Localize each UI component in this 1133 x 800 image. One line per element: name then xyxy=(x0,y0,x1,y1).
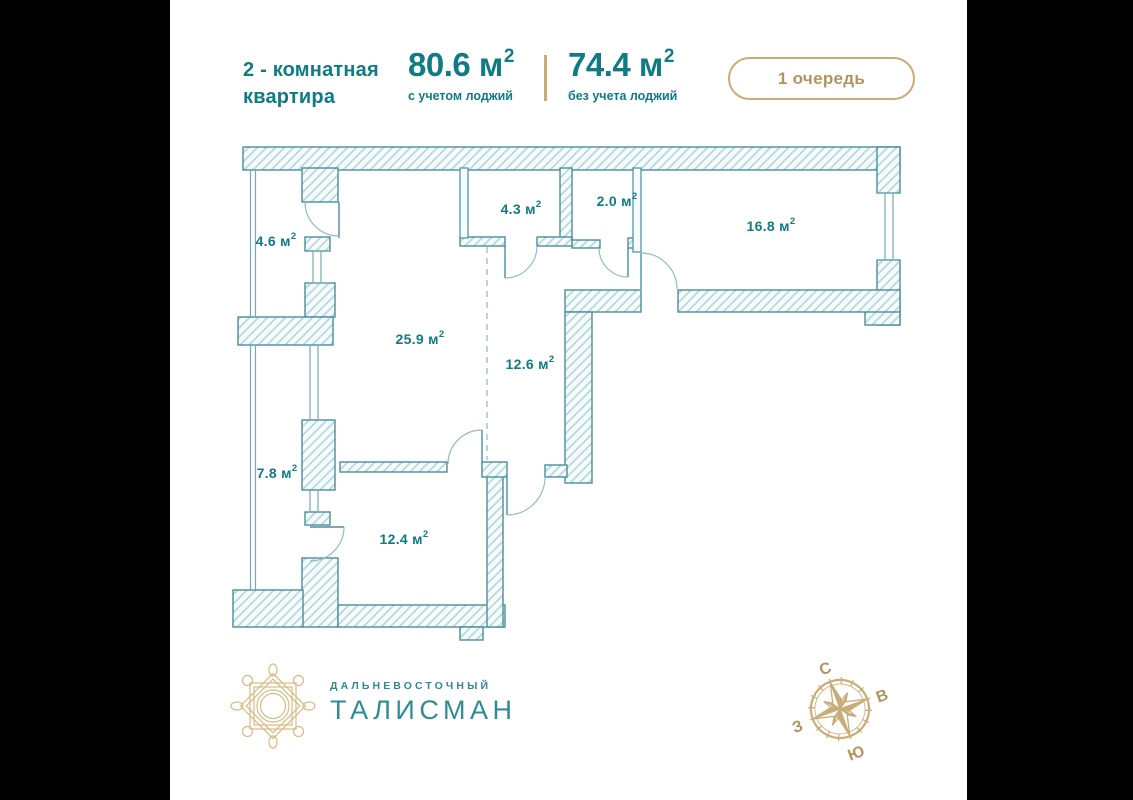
apartment-type-title: 2 - комнатная квартира xyxy=(243,57,413,111)
compass-east-label: В xyxy=(874,687,891,707)
area-without-loggia-value: 74.4 м2 xyxy=(568,46,677,84)
floor-plan-drawing: 4.6 м24.3 м22.0 м216.8 м225.9 м212.6 м27… xyxy=(230,135,910,650)
area-with-loggia-value: 80.6 м2 xyxy=(408,46,513,84)
room-area-label-room-4-3: 4.3 м2 xyxy=(501,199,542,217)
brand-line2: ТАЛИСМАН xyxy=(330,695,517,726)
area-with-loggia-label: с учетом лоджий xyxy=(408,89,513,103)
room-area-label-room-12-4: 12.4 м2 xyxy=(380,529,429,547)
walls xyxy=(233,147,900,640)
area-with-loggia: 80.6 м2 с учетом лоджий xyxy=(408,46,513,103)
room-area-label-room-2-0: 2.0 м2 xyxy=(597,191,638,209)
compass-rose-icon: С В Ю З xyxy=(777,642,907,772)
room-area-labels: 4.6 м24.3 м22.0 м216.8 м225.9 м212.6 м27… xyxy=(256,191,796,547)
compass-north-label: С xyxy=(817,659,834,679)
header-divider xyxy=(544,55,547,101)
room-area-label-hallway: 12.6 м2 xyxy=(506,354,555,372)
brand-wordmark: ДАЛЬНЕВОСТОЧНЫЙ ТАЛИСМАН xyxy=(330,680,517,726)
room-area-label-living-kitchen: 25.9 м2 xyxy=(396,329,445,347)
phase-badge: 1 очередь xyxy=(728,57,915,100)
room-area-label-loggia-bottom: 7.8 м2 xyxy=(257,463,298,481)
brand-line1: ДАЛЬНЕВОСТОЧНЫЙ xyxy=(330,680,517,692)
compass-south-label: Ю xyxy=(846,743,867,765)
room-area-label-loggia-top: 4.6 м2 xyxy=(256,231,297,249)
apartment-type-line1: 2 - комнатная xyxy=(243,57,413,84)
floor-plan-page: 2 - комнатная квартира 80.6 м2 с учетом … xyxy=(0,0,1133,800)
area-without-loggia-label: без учета лоджий xyxy=(568,89,677,103)
compass-west-label: З xyxy=(790,718,805,737)
apartment-type-line2: квартира xyxy=(243,84,413,111)
brand-logo-star-icon xyxy=(228,661,318,751)
room-area-label-bedroom: 16.8 м2 xyxy=(747,216,796,234)
area-without-loggia: 74.4 м2 без учета лоджий xyxy=(568,46,677,103)
